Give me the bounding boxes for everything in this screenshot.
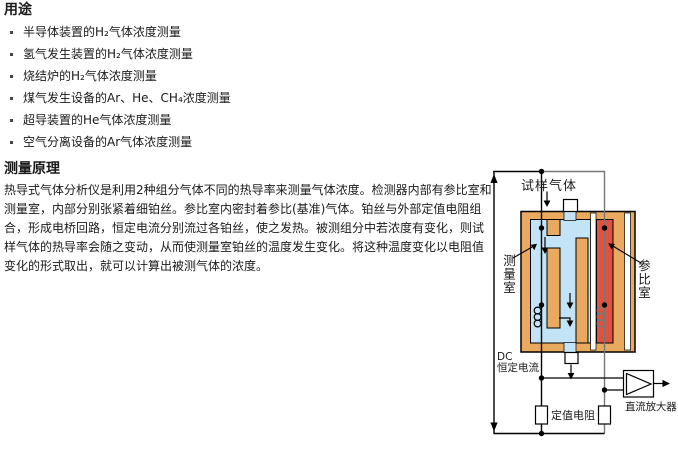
sample-gas-label: 试样气体 (521, 175, 577, 194)
arrow-up-icon (490, 174, 497, 183)
list-item-text: 空气分离设备的Ar气体浓度测量 (23, 135, 192, 150)
arrow-down-icon (544, 201, 551, 208)
dc-constant-current-label: DC 恒定电流 (497, 352, 539, 374)
outlet-port (565, 353, 578, 364)
measuring-cell-label: 测量室 (499, 254, 518, 295)
bullet-icon (10, 119, 13, 122)
reference-cell-label: 参比室 (634, 259, 653, 300)
slot-gap-left (591, 213, 597, 350)
list-item-text: 超导装置的He气体浓度测量 (23, 113, 171, 128)
baffle-right (576, 238, 588, 343)
baffle-center (547, 248, 560, 328)
arrow-down-icon (490, 423, 497, 432)
resistor-symbol-left (536, 406, 548, 424)
fixed-resistor-label: 定值电阻 (551, 407, 595, 423)
list-item: 空气分离设备的Ar气体浓度测量 (4, 135, 494, 157)
list-item: 超导装置的He气体浓度测量 (4, 113, 494, 135)
detector-block (521, 200, 635, 364)
outlet-slot (564, 343, 576, 353)
list-item: 烧结炉的H₂气体浓度测量 (4, 69, 494, 91)
constant-current-label: 恒定电流 (497, 363, 539, 374)
list-item: 煤气发生设备的Ar、He、CH₄浓度测量 (4, 91, 494, 113)
section-title-uses: 用途 (4, 2, 494, 19)
inlet-port (564, 200, 578, 212)
bullet-icon (10, 75, 13, 78)
list-item-text: 煤气发生设备的Ar、He、CH₄浓度测量 (23, 91, 231, 106)
principle-paragraph: 热导式气体分析仪是利用2种组分气体不同的热导率来测量气体浓度。检测器内部有参比室… (4, 181, 494, 276)
bullet-icon (10, 97, 13, 100)
list-item-text: 半导体装置的H₂气体浓度测量 (23, 25, 181, 40)
resistor-symbol-right (599, 406, 611, 424)
list-item: 氢气发生装置的H₂气体浓度测量 (4, 47, 494, 69)
list-item-text: 烧结炉的H₂气体浓度测量 (23, 69, 157, 84)
uses-list: 半导体装置的H₂气体浓度测量 氢气发生装置的H₂气体浓度测量 烧结炉的H₂气体浓… (4, 25, 494, 157)
bullet-icon (10, 141, 13, 144)
arrow-right-icon (663, 380, 671, 387)
slot-gap-right (625, 213, 631, 350)
bullet-icon (10, 53, 13, 56)
list-item-text: 氢气发生装置的H₂气体浓度测量 (23, 47, 193, 62)
baffle-top (547, 220, 560, 236)
text-column: 用途 半导体装置的H₂气体浓度测量 氢气发生装置的H₂气体浓度测量 烧结炉的H₂… (4, 2, 494, 276)
list-item: 半导体装置的H₂气体浓度测量 (4, 25, 494, 47)
inlet-slot (564, 211, 576, 221)
bullet-icon (10, 31, 13, 34)
section-title-principle: 测量原理 (4, 161, 494, 178)
dc-amplifier-label: 直流放大器 (625, 399, 677, 414)
